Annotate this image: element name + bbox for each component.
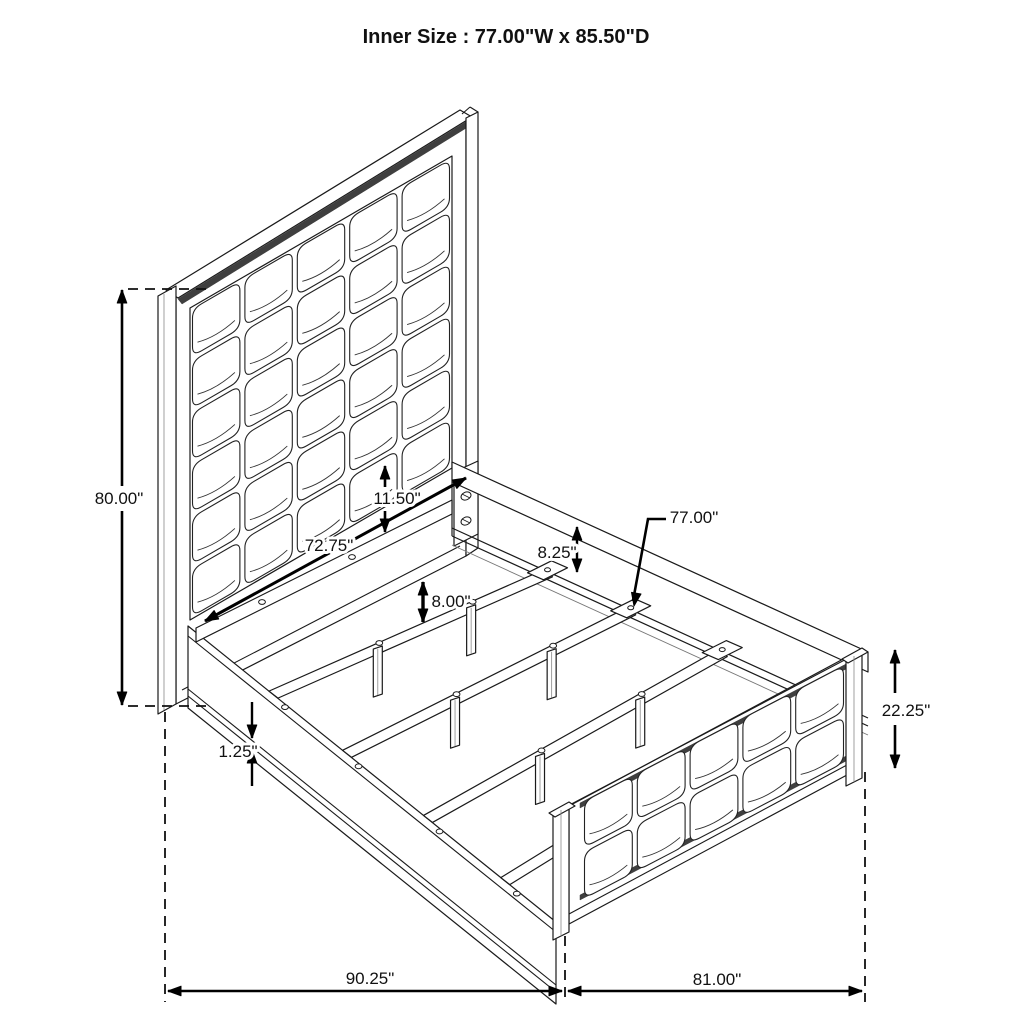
dim-label-rail-height: 8.25" [537, 543, 576, 562]
dim-label-footboard-height: 22.25" [882, 701, 931, 720]
dim-label-panel-gap: 11.50" [373, 489, 420, 508]
dim-label-headboard-height: 80.00" [95, 489, 144, 508]
dim-label-leg-height: 8.00" [431, 592, 470, 611]
dim-label-rail-lip: 1.25" [218, 742, 257, 761]
dim-label-overall-right: 81.00" [693, 970, 742, 989]
dim-label-inner-width: 72.75" [305, 536, 354, 555]
dim-label-overall-left: 90.25" [346, 969, 395, 988]
title: Inner Size : 77.00"W x 85.50"D [363, 26, 650, 48]
dim-label-slat-width: 77.00" [670, 508, 719, 527]
footboard [549, 648, 868, 940]
diagram-canvas: Inner Size : 77.00"W x 85.50"D 80.00" 11… [0, 0, 1024, 1024]
bed-dimension-diagram: Inner Size : 77.00"W x 85.50"D 80.00" 11… [0, 0, 1024, 1024]
